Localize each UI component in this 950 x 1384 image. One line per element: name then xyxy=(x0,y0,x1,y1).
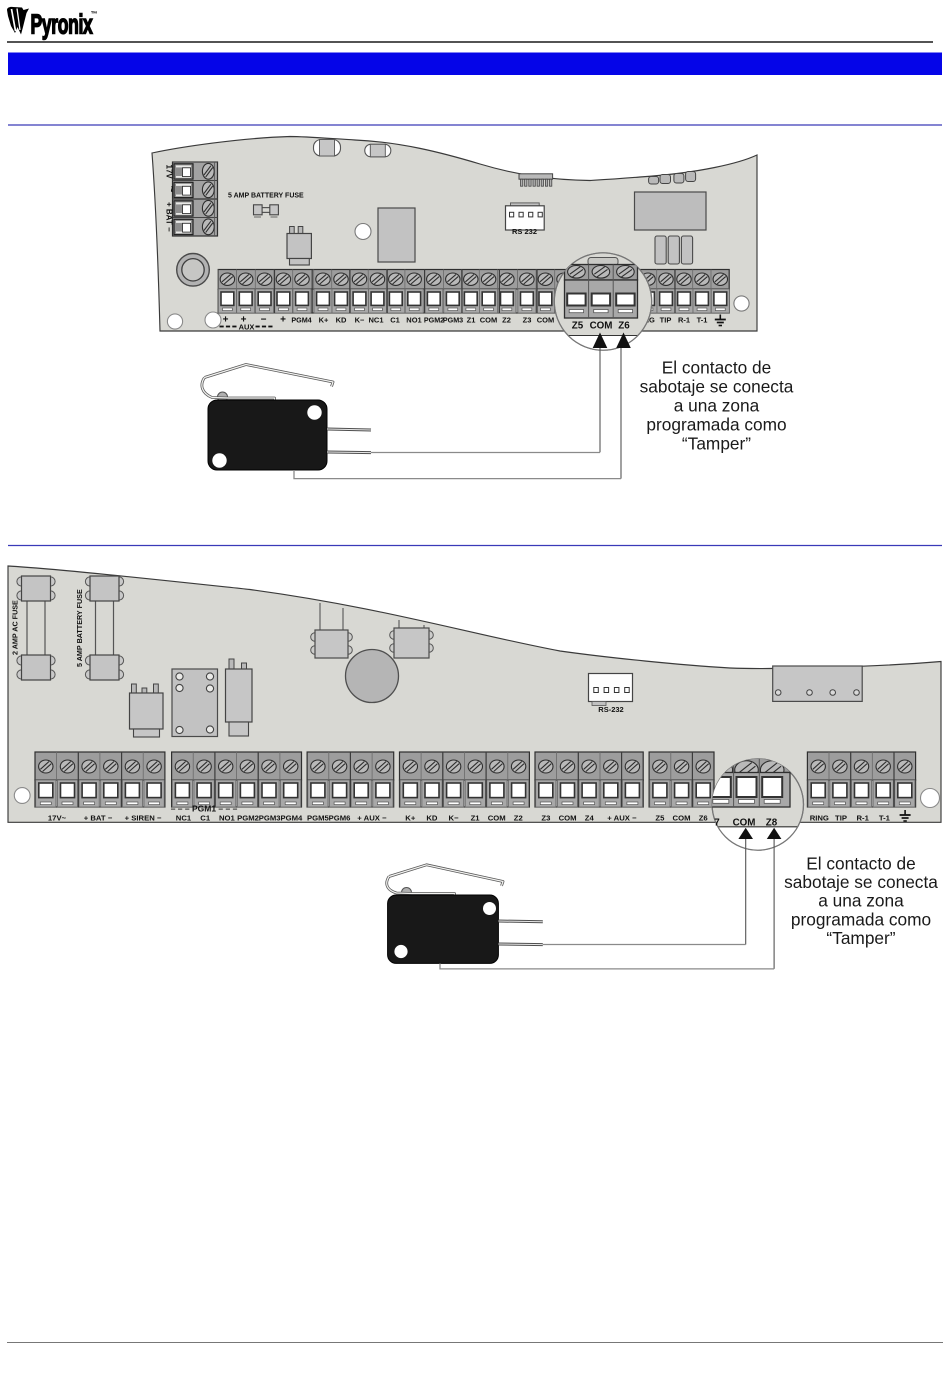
svg-text:Z5: Z5 xyxy=(572,321,584,332)
svg-text:Pyronix: Pyronix xyxy=(31,8,93,39)
svg-text:~: ~ xyxy=(165,186,179,193)
svg-text:PGM4: PGM4 xyxy=(291,316,311,325)
svg-text:TIP: TIP xyxy=(660,316,672,325)
svg-text:NC1: NC1 xyxy=(176,814,192,823)
svg-text:COM: COM xyxy=(673,814,691,823)
svg-text:T-1: T-1 xyxy=(879,814,891,823)
svg-text:K−: K− xyxy=(448,814,459,823)
svg-text:COM: COM xyxy=(590,321,613,332)
svg-text:Z8: Z8 xyxy=(766,818,778,829)
svg-text:sabotaje se conecta: sabotaje se conecta xyxy=(784,872,938,892)
svg-text:NO1: NO1 xyxy=(219,814,236,823)
svg-text:El contacto de: El contacto de xyxy=(806,854,916,874)
svg-text:+ BAT −: + BAT − xyxy=(84,814,113,823)
svg-text:R-1: R-1 xyxy=(678,316,690,325)
svg-text:+ AUX −: + AUX − xyxy=(357,814,387,823)
svg-text:Z1: Z1 xyxy=(471,814,481,823)
svg-text:RING: RING xyxy=(810,814,829,823)
svg-text:“Tamper”: “Tamper” xyxy=(826,928,895,948)
svg-text:PGM2: PGM2 xyxy=(424,316,444,325)
svg-text:Z6: Z6 xyxy=(618,321,630,332)
svg-text:™: ™ xyxy=(91,11,98,18)
svg-text:– – – PGM1 – – –: – – – PGM1 – – – xyxy=(171,804,238,814)
svg-text:K−: K− xyxy=(355,316,365,325)
svg-text:PGM4: PGM4 xyxy=(281,814,304,823)
svg-text:KD: KD xyxy=(336,316,347,325)
svg-text:Z1: Z1 xyxy=(467,316,476,325)
svg-text:17V: 17V xyxy=(165,165,174,180)
svg-text:Z2: Z2 xyxy=(514,814,523,823)
svg-text:El contacto de: El contacto de xyxy=(662,358,772,378)
svg-text:PGM3: PGM3 xyxy=(259,814,281,823)
svg-text:+ BAT −: + BAT − xyxy=(165,202,174,232)
svg-text:17V~: 17V~ xyxy=(48,814,67,823)
svg-text:COM: COM xyxy=(537,316,555,325)
svg-text:NO1: NO1 xyxy=(406,316,421,325)
svg-text:programada como: programada como xyxy=(646,415,786,435)
svg-text:5 AMP BATTERY FUSE: 5 AMP BATTERY FUSE xyxy=(228,193,304,200)
svg-text:C1: C1 xyxy=(390,316,400,325)
svg-text:+: + xyxy=(280,315,286,326)
svg-text:COM: COM xyxy=(488,814,506,823)
svg-text:+ AUX −: + AUX − xyxy=(607,814,637,823)
svg-text:T-1: T-1 xyxy=(697,316,708,325)
svg-text:RS 232: RS 232 xyxy=(512,227,537,236)
svg-text:2 AMP AC FUSE: 2 AMP AC FUSE xyxy=(11,600,20,655)
svg-text:K+: K+ xyxy=(405,814,416,823)
svg-text:AUX: AUX xyxy=(239,323,255,332)
svg-text:K+: K+ xyxy=(319,316,329,325)
svg-text:Z6: Z6 xyxy=(699,814,708,823)
svg-text:PGM6: PGM6 xyxy=(329,814,351,823)
svg-text:PGM2: PGM2 xyxy=(237,814,259,823)
svg-text:−: − xyxy=(261,315,267,326)
svg-text:PGM3: PGM3 xyxy=(443,316,463,325)
svg-text:“Tamper”: “Tamper” xyxy=(682,434,751,454)
svg-text:Z5: Z5 xyxy=(655,814,665,823)
svg-text:5 AMP BATTERY FUSE: 5 AMP BATTERY FUSE xyxy=(75,589,84,667)
svg-text:NC1: NC1 xyxy=(368,316,383,325)
svg-text:R-1: R-1 xyxy=(857,814,870,823)
svg-text:Z2: Z2 xyxy=(502,316,511,325)
svg-text:a una zona: a una zona xyxy=(674,396,760,416)
svg-text:COM: COM xyxy=(733,818,756,829)
svg-text:COM: COM xyxy=(480,316,498,325)
svg-text:Z3: Z3 xyxy=(541,814,550,823)
svg-text:PGM5: PGM5 xyxy=(307,814,330,823)
svg-text:COM: COM xyxy=(559,814,577,823)
svg-text:Z3: Z3 xyxy=(523,316,532,325)
svg-text:TIP: TIP xyxy=(835,814,847,823)
svg-text:programada como: programada como xyxy=(791,909,931,929)
svg-text:sabotaje se conecta: sabotaje se conecta xyxy=(640,377,794,397)
svg-text:Z4: Z4 xyxy=(585,814,595,823)
svg-text:+ SIREN −: + SIREN − xyxy=(125,814,162,823)
svg-text:C1: C1 xyxy=(200,814,211,823)
svg-text:RS-232: RS-232 xyxy=(598,705,623,714)
svg-text:KD: KD xyxy=(426,814,438,823)
svg-text:7: 7 xyxy=(714,818,720,829)
svg-text:a una zona: a una zona xyxy=(818,891,904,911)
svg-text:+: + xyxy=(223,315,229,326)
